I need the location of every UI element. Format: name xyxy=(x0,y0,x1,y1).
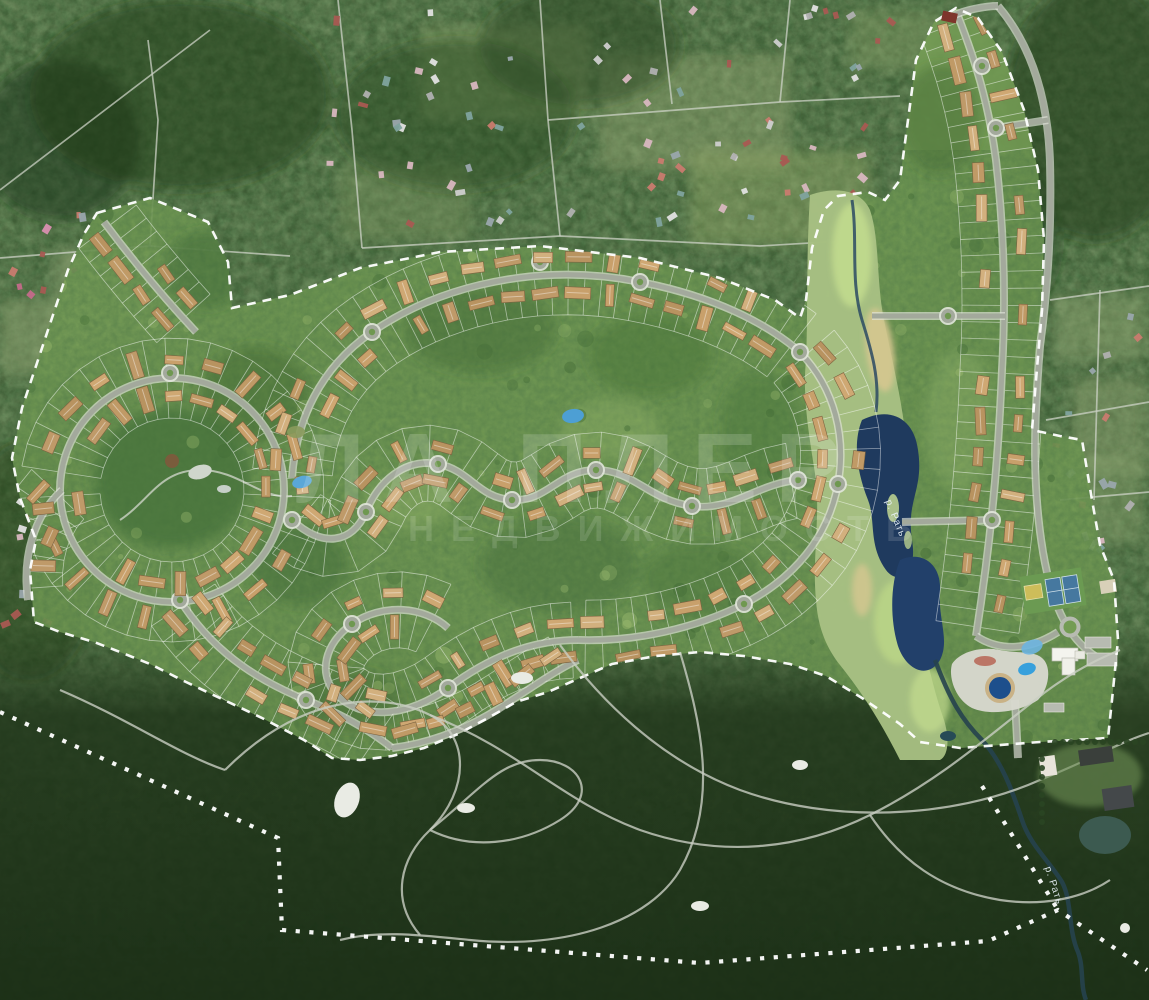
house xyxy=(960,91,974,117)
existing-house xyxy=(326,161,333,166)
tree xyxy=(1039,765,1045,771)
house xyxy=(1016,376,1025,398)
tree xyxy=(1039,774,1045,780)
parking-lot xyxy=(1085,637,1111,648)
tree-blob xyxy=(398,260,406,268)
tree-blob xyxy=(908,193,914,199)
drop-off-loop xyxy=(1062,619,1079,636)
house xyxy=(564,287,591,300)
house xyxy=(175,571,186,595)
tree-blob xyxy=(717,551,729,563)
tree-blob xyxy=(523,376,530,383)
roundabout xyxy=(735,595,753,613)
tree xyxy=(1039,801,1045,807)
tree xyxy=(1140,739,1146,745)
roundabout xyxy=(439,679,457,697)
house xyxy=(975,407,986,435)
house xyxy=(962,553,973,574)
house xyxy=(580,616,604,629)
tree xyxy=(1039,792,1045,798)
house xyxy=(390,615,399,639)
tree-blob xyxy=(956,575,968,587)
roundabout-island xyxy=(177,597,183,603)
existing-house xyxy=(333,16,340,26)
tree-blob xyxy=(809,640,814,645)
tree xyxy=(1076,739,1082,745)
tree-blob xyxy=(577,330,594,347)
tree xyxy=(1039,819,1045,825)
tree-blob xyxy=(1098,719,1110,731)
tree-blob xyxy=(1047,475,1055,483)
existing-house xyxy=(715,142,721,147)
roundabout xyxy=(161,364,179,382)
house xyxy=(973,447,984,466)
roundabout-island xyxy=(993,125,999,131)
existing-house xyxy=(785,189,791,195)
tree-blob xyxy=(771,390,781,400)
house xyxy=(565,251,592,262)
roof-ridge xyxy=(582,622,602,623)
tree-blob xyxy=(703,399,712,408)
house xyxy=(533,252,552,263)
tree-blob xyxy=(477,344,493,360)
house xyxy=(383,588,403,598)
map-canvas: р. Рать р. Рать ЛА ПЛЕР НЕДВИЖИМОСТЬ xyxy=(0,0,1149,1000)
existing-house xyxy=(1065,411,1072,415)
existing-house xyxy=(727,60,732,68)
tree xyxy=(1124,739,1130,745)
tree xyxy=(1116,739,1122,745)
tree xyxy=(1060,739,1066,745)
tree-blob xyxy=(298,643,309,654)
tree-blob xyxy=(969,238,984,253)
masterplan-aerial-map: р. Рать р. Рать ЛА ПЛЕР НЕДВИЖИМОСТЬ xyxy=(0,0,1149,1000)
tree xyxy=(1108,739,1114,745)
house xyxy=(1016,228,1027,254)
estate-pond xyxy=(1079,816,1131,854)
tree-blob xyxy=(1020,730,1033,743)
flower-bed xyxy=(974,656,996,666)
tree-blob xyxy=(467,252,476,261)
tree-blob xyxy=(558,324,571,337)
existing-house xyxy=(427,9,433,16)
clearing xyxy=(457,803,475,813)
existing-house xyxy=(16,534,23,541)
tree-blob xyxy=(187,436,200,449)
roundabout xyxy=(983,511,1001,529)
house xyxy=(979,269,990,288)
watermark-line1: ЛА ПЛЕР xyxy=(296,413,859,523)
existing-house xyxy=(875,38,880,44)
existing-house xyxy=(378,171,384,178)
house xyxy=(1013,414,1023,432)
estate-building xyxy=(1102,785,1135,811)
tree-blob xyxy=(303,315,313,325)
tree xyxy=(1068,739,1074,745)
tree-blob xyxy=(682,312,688,318)
roundabout-island xyxy=(797,349,803,355)
house xyxy=(976,194,987,221)
house xyxy=(31,560,56,572)
clearing xyxy=(511,672,533,684)
existing-house xyxy=(407,161,414,169)
tree-blob xyxy=(507,380,518,391)
tree-blob xyxy=(372,274,387,289)
watermark-line2: НЕДВИЖИМОСТЬ xyxy=(408,508,929,549)
tree-blob xyxy=(118,554,123,559)
tree-blob xyxy=(131,527,142,538)
tree xyxy=(1039,810,1045,816)
house xyxy=(270,449,282,471)
roundabout-island xyxy=(979,63,985,69)
tree xyxy=(1100,739,1106,745)
house xyxy=(501,291,525,303)
roundabout-island xyxy=(369,329,375,335)
tree-blob xyxy=(957,344,968,355)
house xyxy=(647,609,664,621)
tree-blob xyxy=(534,325,541,332)
tree-blob xyxy=(599,570,610,581)
roundabout xyxy=(791,343,809,361)
house xyxy=(32,502,54,516)
tree-blob xyxy=(564,362,576,374)
house xyxy=(165,390,182,401)
roundabout-island xyxy=(989,517,995,523)
roundabout xyxy=(343,615,361,633)
house xyxy=(605,284,614,307)
swimming-pool xyxy=(987,675,1013,701)
house xyxy=(972,162,984,182)
tree xyxy=(1039,747,1045,753)
tree xyxy=(1084,739,1090,745)
tree-blob xyxy=(181,512,192,523)
roundabout xyxy=(363,323,381,341)
tree xyxy=(1039,756,1045,762)
parking-lot xyxy=(1044,703,1064,712)
existing-house xyxy=(332,108,338,117)
roundabout xyxy=(631,273,649,291)
roundabout xyxy=(973,57,991,75)
park-pavilion xyxy=(165,454,179,468)
pond-icon xyxy=(940,731,956,741)
tree-blob xyxy=(386,569,401,584)
roundabout-island xyxy=(637,279,643,285)
house xyxy=(165,355,184,365)
clearing xyxy=(1120,923,1130,933)
house xyxy=(1018,304,1027,325)
tree xyxy=(1092,739,1098,745)
roundabout xyxy=(987,119,1005,137)
roundabout-island xyxy=(945,313,951,319)
tree-blob xyxy=(80,315,90,325)
roundabout-island xyxy=(349,621,355,627)
roundabout xyxy=(297,691,315,709)
house xyxy=(965,516,977,539)
existing-house xyxy=(507,56,513,61)
roundabout-island xyxy=(303,697,309,703)
tree xyxy=(1132,739,1138,745)
tree-blob xyxy=(895,324,907,336)
basketball-court xyxy=(1024,584,1043,600)
house xyxy=(547,618,574,629)
tree-blob xyxy=(560,585,568,593)
roundabout-island xyxy=(445,685,451,691)
clearing xyxy=(792,760,808,770)
roundabout xyxy=(939,307,957,325)
house xyxy=(262,476,271,497)
roundabout-island xyxy=(741,601,747,607)
house xyxy=(1007,454,1025,466)
roof-ridge xyxy=(33,566,54,567)
roundabout-island xyxy=(167,370,173,376)
tree xyxy=(1039,783,1045,789)
tree-blob xyxy=(920,548,931,559)
house xyxy=(1004,521,1015,544)
clearing xyxy=(691,901,709,911)
existing-house xyxy=(78,212,86,222)
house xyxy=(975,375,989,395)
roundabout-island xyxy=(289,517,295,523)
house xyxy=(1014,195,1025,215)
tree xyxy=(1052,739,1058,745)
